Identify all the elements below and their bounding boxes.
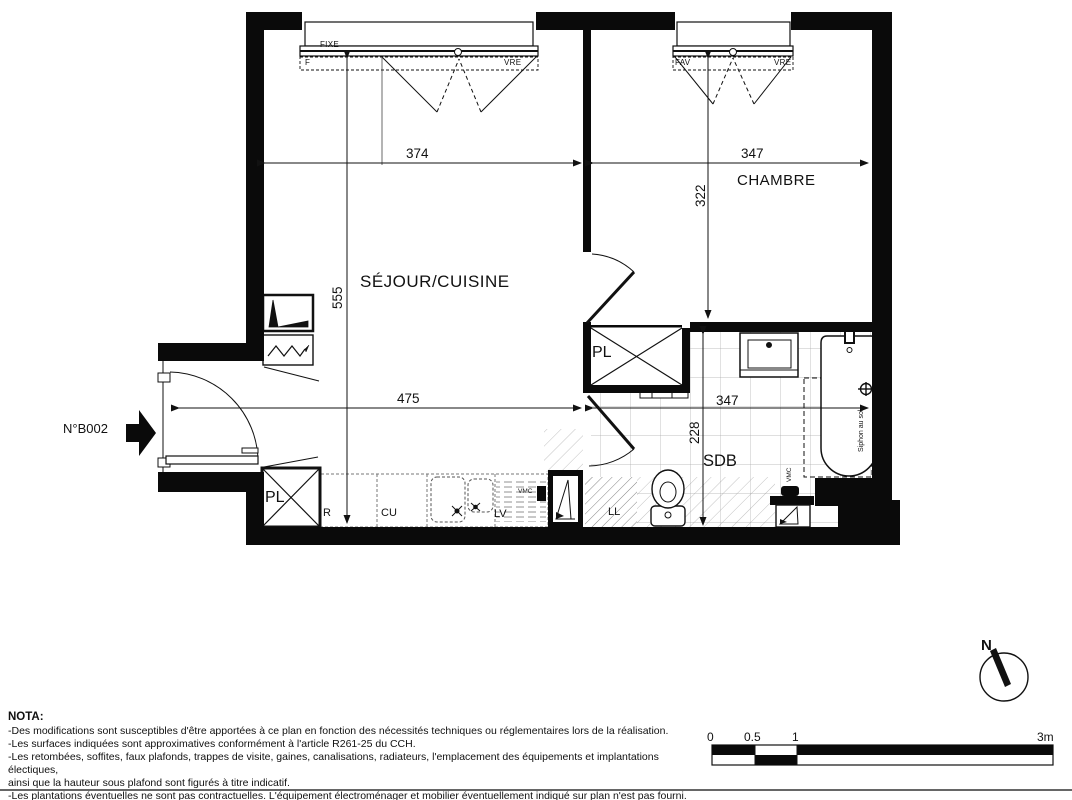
room-label-chambre: CHAMBRE — [737, 172, 816, 189]
dim-322: 322 — [693, 184, 708, 207]
radiator-sejour — [263, 295, 319, 381]
unit-number: N°B002 — [63, 421, 108, 436]
closet-label-top: PL — [592, 344, 612, 362]
room-label-sdb: SDB — [703, 452, 737, 471]
scale-3m: 3m — [1037, 730, 1054, 744]
nota-block: NOTA: -Des modifications sont susceptibl… — [8, 711, 688, 800]
scale-05: 0.5 — [744, 730, 761, 744]
floor-plan-page: { "unit": { "label": "N°B002" }, "rooms"… — [0, 0, 1072, 800]
plan-linework — [0, 0, 1072, 800]
room-label-sejour: SÉJOUR/CUISINE — [360, 272, 510, 292]
nota-title: NOTA: — [8, 711, 688, 723]
dim-347-sdb: 347 — [716, 393, 739, 408]
window1-f-label: F — [305, 58, 310, 67]
toilet — [651, 470, 685, 526]
nota-line: -Les plantations éventuelles ne sont pas… — [8, 790, 688, 800]
north-compass-icon — [980, 648, 1028, 701]
dim-555: 555 — [330, 286, 345, 309]
dim-475: 475 — [397, 391, 420, 406]
scale-0: 0 — [707, 730, 714, 744]
entry-arrow-icon — [126, 410, 156, 456]
vmc-sdb-label: VMC — [786, 468, 793, 482]
nota-line: -Les retombées, soffites, faux plafonds,… — [8, 751, 688, 777]
window2-vre-label: VRE — [774, 58, 791, 67]
dim-374: 374 — [406, 146, 429, 161]
cooktop-label: CU — [381, 507, 397, 519]
scale-1: 1 — [792, 730, 799, 744]
chambre-door — [587, 254, 634, 323]
scale-bar — [712, 745, 1053, 765]
dishwasher-label: LV — [494, 508, 507, 520]
fridge-label: R — [323, 507, 331, 519]
washer-space-hatch — [585, 477, 637, 527]
nota-line: -Des modifications sont susceptibles d'ê… — [8, 725, 688, 738]
north-label: N — [981, 637, 992, 654]
closet-label-bottom: PL — [265, 489, 285, 507]
nota-line: ainsi que la hauteur sous plafond sont f… — [8, 777, 688, 790]
vmc-kitchen-label: VMC — [518, 488, 532, 495]
window1-fixe-label: FIXE — [320, 40, 339, 49]
soffit-hatch-sejour — [544, 429, 583, 472]
duct-radiator-kitchen — [548, 470, 583, 527]
nota-line: -Les surfaces indiquées sont approximati… — [8, 738, 688, 751]
washer-label: LL — [608, 506, 620, 518]
washbasin — [740, 333, 798, 377]
entry-door — [158, 361, 258, 472]
dim-228: 228 — [687, 421, 702, 444]
window2-fav-label: FAV — [675, 58, 690, 67]
dim-347-top: 347 — [741, 146, 764, 161]
siphon-label: Siphon au sol — [858, 410, 865, 452]
window1-vre-label: VRE — [504, 58, 521, 67]
